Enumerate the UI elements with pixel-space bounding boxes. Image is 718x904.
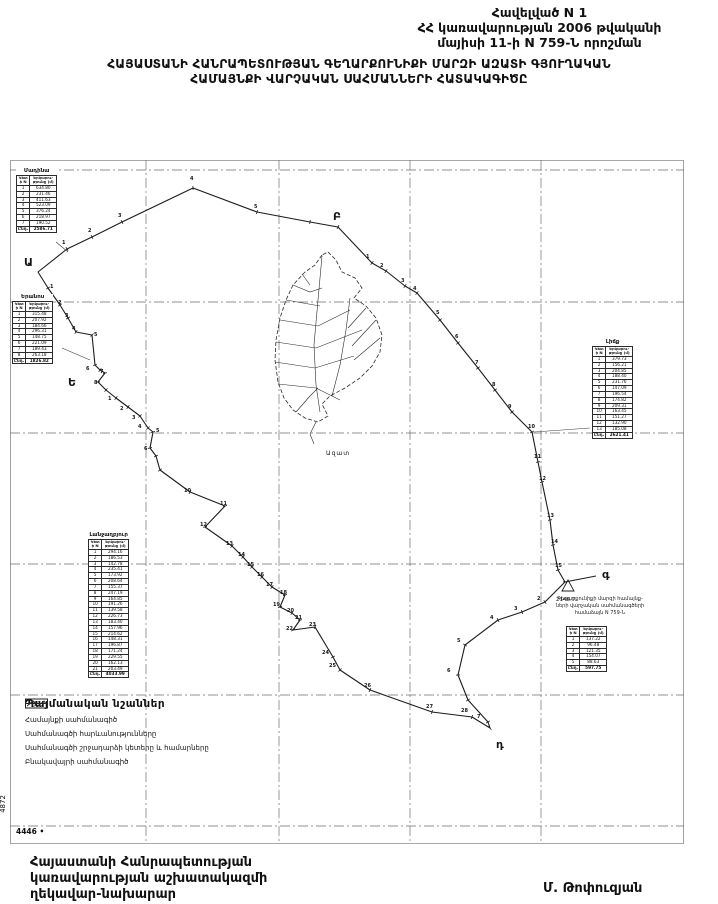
- point-number: 23: [309, 622, 316, 628]
- coords-table-south: ԼանջաղբյուրԿետի NԵրկարու-թյունը (մ)1294.…: [88, 532, 129, 678]
- point-number: 3: [118, 213, 121, 219]
- appendix-line3: մայիսի 11-ի N 759-Ն որոշման: [367, 35, 712, 50]
- point-number: 1: [50, 284, 53, 290]
- appendix-line1: Հավելված N 1: [367, 5, 712, 20]
- point-number: 4: [138, 424, 141, 430]
- point-number: 2: [88, 228, 91, 234]
- margin-mark-rotated: 4872: [0, 795, 7, 813]
- legend: Պայմանական նշաններ Համայնքի սահմանագիծ Ս…: [25, 698, 245, 772]
- col-point: Կետի N: [17, 176, 30, 186]
- page-title-line2: ՀԱՄԱՅՆՔԻ ՎԱՐՉԱԿԱՆ ՍԱՀՄԱՆՆԵՐԻ ՀԱՏԱԿԱԳԻԾԸ: [0, 72, 718, 87]
- point-number: 9: [508, 404, 511, 410]
- col-point: Կետի N: [567, 627, 580, 637]
- point-number: 4: [190, 176, 193, 182]
- section-letter: Բ: [333, 210, 341, 223]
- point-number: 6: [86, 366, 89, 372]
- coords-table-west: ԵրանոսԿետի NԵրկարու-թյունը (մ)1315.48220…: [12, 294, 53, 364]
- section-letter: Ա: [24, 256, 33, 269]
- section-letter: Ե: [68, 376, 76, 389]
- point-number: 5: [436, 310, 439, 316]
- col-length: Երկարու-թյունը (մ): [26, 302, 53, 312]
- point-number: 13: [547, 513, 554, 519]
- document-page: Հավելված N 1 ՀՀ կառավարության 2006 թվակա…: [0, 0, 718, 904]
- page-title: ՀԱՅԱՍՏԱՆԻ ՀԱՆՐԱՊԵՏՈՒԹՅԱՆ ԳԵՂԱՐՔՈՒՆԻՔԻ ՄԱ…: [0, 57, 718, 87]
- legend-item-label: Սահմանագծի հարևանությունները: [25, 730, 156, 738]
- point-number: 2: [537, 596, 540, 602]
- point-number: 25: [329, 663, 336, 669]
- point-number: 3: [401, 278, 404, 284]
- table-total-row: Ընդ.597.75: [567, 666, 607, 672]
- signatory-line3: ղեկավար-նախարար: [30, 887, 267, 903]
- point-number: 1: [62, 240, 65, 246]
- col-length: Երկարու-թյունը (մ): [102, 540, 129, 550]
- signatory-line2: կառավարության աշխատակազմի: [30, 871, 267, 887]
- point-number: 10: [184, 488, 191, 494]
- point-number: 2: [120, 406, 123, 412]
- settlement-boundary-symbol-icon: [25, 698, 51, 709]
- coords-table-north: ՄադինաԿետի NԵրկարու-թյունը (մ)1634.80223…: [16, 168, 57, 233]
- legend-item-label: Համայնքի սահմանագիծ: [25, 716, 117, 724]
- point-number: 22: [286, 626, 293, 632]
- point-number: 5: [156, 428, 159, 434]
- point-number: 4: [413, 286, 416, 292]
- point-number: 8: [94, 380, 97, 386]
- legend-item-settlement: Բնակավայրի սահմանագիծ: [25, 758, 245, 766]
- boundary-points-table: Կետի NԵրկարու-թյունը (մ)1294.162186.5331…: [88, 539, 129, 678]
- boundary-points-table: Կետի NԵրկարու-թյունը (մ)1315.482207.9231…: [12, 301, 53, 364]
- point-number: 3: [65, 313, 68, 319]
- point-number: 11: [220, 501, 227, 507]
- point-number: 2: [58, 300, 61, 306]
- point-number: 1: [108, 396, 111, 402]
- point-number: 18: [280, 590, 287, 596]
- col-length: Երկարու-թյունը (մ): [606, 347, 633, 357]
- point-number: 24: [322, 650, 329, 656]
- point-number: 26: [364, 683, 371, 689]
- point-number: 2: [380, 263, 383, 269]
- point-number: 12: [200, 522, 207, 528]
- legend-item-boundary: Համայնքի սահմանագիծ: [25, 716, 245, 724]
- signatory-title: Հայաստանի Հանրապետության կառավարության ա…: [30, 855, 267, 903]
- col-point: Կետի N: [89, 540, 102, 550]
- section-letter: դ: [496, 738, 504, 751]
- point-number: 3: [132, 415, 135, 421]
- map-note-line1: Գեղարքունիքի մարզի համայնք-: [550, 596, 650, 603]
- appendix-line2: ՀՀ կառավարության 2006 թվականի: [367, 20, 712, 35]
- coords-table-east: ԼիճքԿետի NԵրկարու-թյունը (մ)1379.732156.…: [592, 339, 633, 439]
- point-number: 19: [273, 602, 280, 608]
- settlement-name: Ազատ: [326, 450, 350, 457]
- point-number: 4: [72, 326, 75, 332]
- boundary-points-table: Կետի NԵրկարու-թյունը (մ)1634.802231.4634…: [16, 175, 57, 233]
- point-number: 3: [514, 606, 517, 612]
- point-number: 15: [555, 563, 562, 569]
- point-number: 4: [490, 615, 493, 621]
- point-number: 14: [238, 552, 245, 558]
- legend-item-adjacency: Սահմանագծի հարևանությունները: [25, 730, 245, 738]
- boundary-points-table: Կետի NԵրկարու-թյունը (մ)1379.732156.2132…: [592, 346, 633, 439]
- point-number: 7: [475, 360, 478, 366]
- section-letter: գ: [602, 568, 610, 581]
- map-note-line3: համաձայն N 759-Ն: [550, 610, 650, 617]
- point-number: 6: [144, 446, 147, 452]
- legend-item-label: Բնակավայրի սահմանագիծ: [25, 758, 129, 766]
- point-number: 5: [457, 638, 460, 644]
- legend-item-turn-points: 65 Սահմանագծի շրջադարձի կետերը և համարնե…: [25, 744, 245, 752]
- point-number: 1: [366, 254, 369, 260]
- margin-mark-bottom-left: 4446 •: [16, 827, 44, 836]
- point-number: 16: [257, 572, 264, 578]
- point-number: 20: [287, 608, 294, 614]
- page-title-line1: ՀԱՅԱՍՏԱՆԻ ՀԱՆՐԱՊԵՏՈՒԹՅԱՆ ԳԵՂԱՐՔՈՒՆԻՔԻ ՄԱ…: [0, 57, 718, 72]
- legend-title: Պայմանական նշաններ: [25, 698, 245, 710]
- point-number: 6: [447, 668, 450, 674]
- point-number: 28: [461, 708, 468, 714]
- table-title: Լիճք: [592, 339, 633, 345]
- point-number: 6: [455, 334, 458, 340]
- point-number: 7: [477, 714, 480, 720]
- point-number: 15: [247, 562, 254, 568]
- col-length: Երկարու-թյունը (մ): [30, 176, 57, 186]
- point-number: 5: [94, 332, 97, 338]
- table-total-row: Ընդ.2586.71: [17, 226, 57, 232]
- point-number: 14: [551, 539, 558, 545]
- map-note-line2: ների վարչական սահմանագծերի: [550, 603, 650, 610]
- col-length: Երկարու-թյունը (մ): [580, 627, 607, 637]
- signatory-line1: Հայաստանի Հանրապետության: [30, 855, 267, 871]
- point-number: 13: [226, 541, 233, 547]
- point-number: 27: [426, 704, 433, 710]
- table-title: Մադինա: [16, 168, 57, 174]
- point-number: 21: [295, 615, 302, 621]
- point-number: 5: [254, 204, 257, 210]
- table-total-row: Ընդ.4033.99: [89, 672, 129, 678]
- col-point: Կետի N: [593, 347, 606, 357]
- legend-item-label: Սահմանագծի շրջադարձի կետերը և համարները: [25, 744, 209, 752]
- coords-table-southeast: Կետի NԵրկարու-թյունը (մ)1137.22296.48312…: [566, 626, 607, 672]
- table-title: Լանջաղբյուր: [88, 532, 129, 538]
- point-number: 11: [534, 454, 541, 460]
- table-title: Երանոս: [12, 294, 53, 300]
- table-total-row: Ընդ.1826.82: [13, 358, 53, 364]
- map-note: Գեղարքունիքի մարզի համայնք- ների վարչակա…: [550, 596, 650, 617]
- boundary-points-table: Կետի NԵրկարու-թյունը (մ)1137.22296.48312…: [566, 626, 607, 672]
- table-total-row: Ընդ.2621.41: [593, 432, 633, 438]
- point-number: 10: [528, 424, 535, 430]
- appendix-header: Հավելված N 1 ՀՀ կառավարության 2006 թվակա…: [367, 5, 712, 50]
- col-point: Կետի N: [13, 302, 26, 312]
- point-number: 7: [100, 369, 103, 375]
- point-number: 8: [492, 382, 495, 388]
- signature-name: Մ. Թոփուզյան: [543, 881, 642, 896]
- point-number: 12: [539, 476, 546, 482]
- point-number: 17: [266, 582, 273, 588]
- boundary-map: ԱԲգդԵ2146.7Ազատ1234512345678910111213141…: [10, 160, 684, 844]
